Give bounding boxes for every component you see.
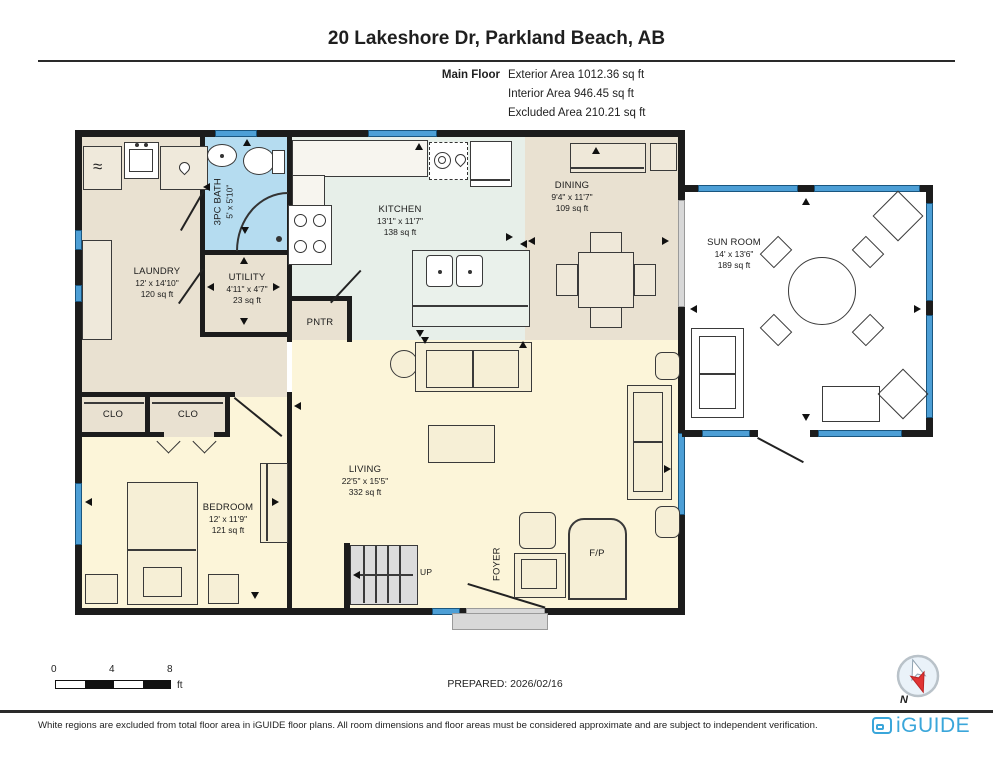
bathroom-sink-icon xyxy=(207,144,237,167)
dining-chair xyxy=(590,232,622,254)
window xyxy=(75,230,82,250)
iguide-logo-icon xyxy=(872,717,892,734)
window xyxy=(75,483,82,545)
fridge-line xyxy=(471,179,510,181)
direction-arrow xyxy=(85,498,92,506)
kitchen-counter xyxy=(292,175,325,207)
nightstand xyxy=(208,574,239,604)
wall xyxy=(75,392,235,397)
direction-arrow xyxy=(415,143,423,150)
direction-arrow xyxy=(506,233,513,241)
window xyxy=(702,430,750,437)
window xyxy=(818,430,902,437)
direction-arrow xyxy=(203,183,210,191)
scale-tick-0: 0 xyxy=(51,664,57,675)
dining-chair xyxy=(590,306,622,328)
wall xyxy=(214,432,230,437)
room-label-utility: UTILITY 4'11" x 4'7" 23 sq ft xyxy=(206,272,288,306)
cabinet xyxy=(650,143,677,171)
toilet-tank-icon xyxy=(272,150,285,174)
sideboard-line xyxy=(571,167,644,169)
drain-dot xyxy=(220,154,224,158)
prepared-date: PREPARED: 2026/02/16 xyxy=(380,678,630,690)
direction-arrow xyxy=(592,147,600,154)
wall xyxy=(200,332,292,337)
window xyxy=(368,130,437,137)
label-closet: CLO xyxy=(88,409,138,421)
armchair xyxy=(514,553,566,598)
direction-arrow xyxy=(240,318,248,325)
shower-head-dot xyxy=(276,236,282,242)
room-label-kitchen: KITCHEN 13'1" x 11'7" 138 sq ft xyxy=(350,204,450,238)
direction-arrow xyxy=(251,592,259,599)
chair-seat xyxy=(521,559,557,589)
room-label-bath: 3PC BATH 5' x 5'10" xyxy=(212,167,235,237)
footer-divider xyxy=(0,710,993,713)
wall xyxy=(926,301,933,315)
stair-arrow-head xyxy=(353,571,360,579)
sink-basin xyxy=(129,149,153,172)
room-label-laundry: LAUNDRY 12' x 14'10" 120 sq ft xyxy=(107,266,207,300)
label-fireplace: F/P xyxy=(572,548,622,560)
sofa-divider xyxy=(472,350,474,388)
direction-arrow xyxy=(520,240,527,248)
scale-segment xyxy=(114,681,143,688)
wall xyxy=(75,545,82,615)
sideboard xyxy=(570,143,646,173)
island-line xyxy=(413,305,528,307)
bed xyxy=(127,482,198,605)
sunroom-bench xyxy=(822,386,880,422)
wall xyxy=(287,296,352,301)
title-divider xyxy=(38,60,955,62)
direction-arrow xyxy=(802,414,810,421)
floorplan-page: { "header": { "title": "20 Lakeshore Dr,… xyxy=(0,0,993,768)
iguide-logo-inner xyxy=(876,724,884,730)
living-sofa xyxy=(415,342,532,392)
window xyxy=(814,185,920,192)
room-label-dining: DINING 9'4" x 11'7" 109 sq ft xyxy=(522,180,622,214)
direction-arrow xyxy=(914,305,921,313)
wall xyxy=(682,430,702,437)
scale-segment xyxy=(143,681,170,688)
sofa-line xyxy=(699,373,736,375)
faucet-dot xyxy=(144,143,148,147)
wall xyxy=(82,432,145,437)
window xyxy=(215,130,257,137)
nightstand xyxy=(85,574,118,604)
droplet-icon xyxy=(177,160,193,176)
end-table xyxy=(655,506,680,538)
burner xyxy=(313,214,326,227)
scale-tick-4: 4 xyxy=(109,664,115,675)
iguide-logo: iGUIDE xyxy=(872,714,982,740)
wall xyxy=(437,130,685,137)
closet-rod xyxy=(84,402,144,404)
burner xyxy=(294,240,307,253)
bed-pillow xyxy=(143,567,182,597)
wall xyxy=(145,392,150,437)
room-label-sunroom: SUN ROOM 14' x 13'6" 189 sq ft xyxy=(684,237,784,271)
scale-bar xyxy=(55,680,171,689)
room-label-bedroom: BEDROOM 12' x 11'9" 121 sq ft xyxy=(178,502,278,536)
window xyxy=(926,203,933,301)
direction-arrow xyxy=(528,237,535,245)
direction-arrow xyxy=(690,305,697,313)
scale-tick-8: 8 xyxy=(167,664,173,675)
direction-arrow xyxy=(662,237,669,245)
wall xyxy=(75,130,215,137)
wall xyxy=(225,392,230,437)
wall xyxy=(926,185,933,203)
droplet-icon xyxy=(453,152,469,168)
wall xyxy=(682,185,698,192)
coffee-table xyxy=(428,425,495,463)
direction-arrow xyxy=(421,337,429,344)
wall xyxy=(545,608,685,615)
exterior-area: Exterior Area 1012.36 sq ft xyxy=(508,66,768,85)
direction-arrow xyxy=(240,257,248,264)
closet-rod xyxy=(152,402,223,404)
wall xyxy=(810,430,818,437)
label-up: UP xyxy=(420,567,442,578)
compass-north-label: N xyxy=(900,694,908,706)
drain-dot xyxy=(438,270,442,274)
scale-segment xyxy=(56,681,85,688)
disclaimer-text: White regions are excluded from total fl… xyxy=(38,720,828,731)
stove-icon xyxy=(288,205,332,265)
dishwasher-icon xyxy=(429,142,468,180)
side-table-round xyxy=(390,350,418,378)
sink-basin xyxy=(456,255,483,287)
sofa-line xyxy=(633,441,663,443)
water-heater-icon xyxy=(160,146,208,190)
compass-icon xyxy=(895,653,941,699)
direction-arrow xyxy=(802,198,810,205)
fridge-icon xyxy=(470,141,512,187)
wall xyxy=(347,296,352,342)
kitchen-counter xyxy=(292,140,428,177)
direction-arrow xyxy=(294,402,301,410)
direction-arrow xyxy=(241,227,249,234)
window xyxy=(698,185,798,192)
direction-arrow xyxy=(664,465,671,473)
room-label-living: LIVING 22'5" x 15'5" 332 sq ft xyxy=(315,464,415,498)
faucet-dot xyxy=(135,143,139,147)
plate-inner xyxy=(438,156,446,164)
label-foyer: FOYER xyxy=(491,537,503,592)
wall xyxy=(75,130,82,230)
drain-dot xyxy=(468,270,472,274)
burner xyxy=(294,214,307,227)
scale-unit: ft xyxy=(177,680,183,691)
staircase xyxy=(350,545,418,605)
wall xyxy=(257,130,368,137)
label-pantry: PNTR xyxy=(295,317,345,329)
scale-segment xyxy=(85,681,114,688)
window xyxy=(75,285,82,302)
wall xyxy=(902,430,933,437)
washer-glyph: ≈ xyxy=(93,157,102,177)
washer-icon: ≈ xyxy=(83,146,122,190)
direction-arrow xyxy=(416,330,424,337)
round-table xyxy=(788,257,856,325)
dining-table xyxy=(578,252,634,308)
burner xyxy=(313,240,326,253)
dining-chair xyxy=(556,264,578,296)
entry-step xyxy=(452,613,548,630)
wall xyxy=(75,608,432,615)
end-table xyxy=(655,352,680,380)
stair-arrow-line xyxy=(357,574,413,576)
page-title: 20 Lakeshore Dr, Parkland Beach, AB xyxy=(0,28,993,50)
floor-label: Main Floor xyxy=(340,66,500,85)
toilet-bowl-icon xyxy=(243,147,275,175)
dining-chair xyxy=(634,264,656,296)
window xyxy=(926,315,933,418)
sink-basin xyxy=(426,255,453,287)
sectional-sofa xyxy=(627,385,672,500)
excluded-area: Excluded Area 210.21 sq ft xyxy=(508,104,768,123)
wall xyxy=(750,430,758,437)
sunroom-sofa xyxy=(691,328,744,418)
label-closet: CLO xyxy=(163,409,213,421)
wall xyxy=(798,185,814,192)
ottoman xyxy=(519,512,556,549)
brand-text: iGUIDE xyxy=(896,714,970,738)
bed-line xyxy=(128,549,196,551)
direction-arrow xyxy=(243,139,251,146)
laundry-sink-icon xyxy=(124,142,159,179)
kitchen-island xyxy=(412,250,530,327)
sunroom-door-leaf xyxy=(757,437,804,463)
interior-area: Interior Area 946.45 sq ft xyxy=(508,85,768,104)
window xyxy=(678,433,685,515)
wall xyxy=(75,250,82,285)
plate-icon xyxy=(434,152,451,169)
direction-arrow xyxy=(519,341,527,348)
